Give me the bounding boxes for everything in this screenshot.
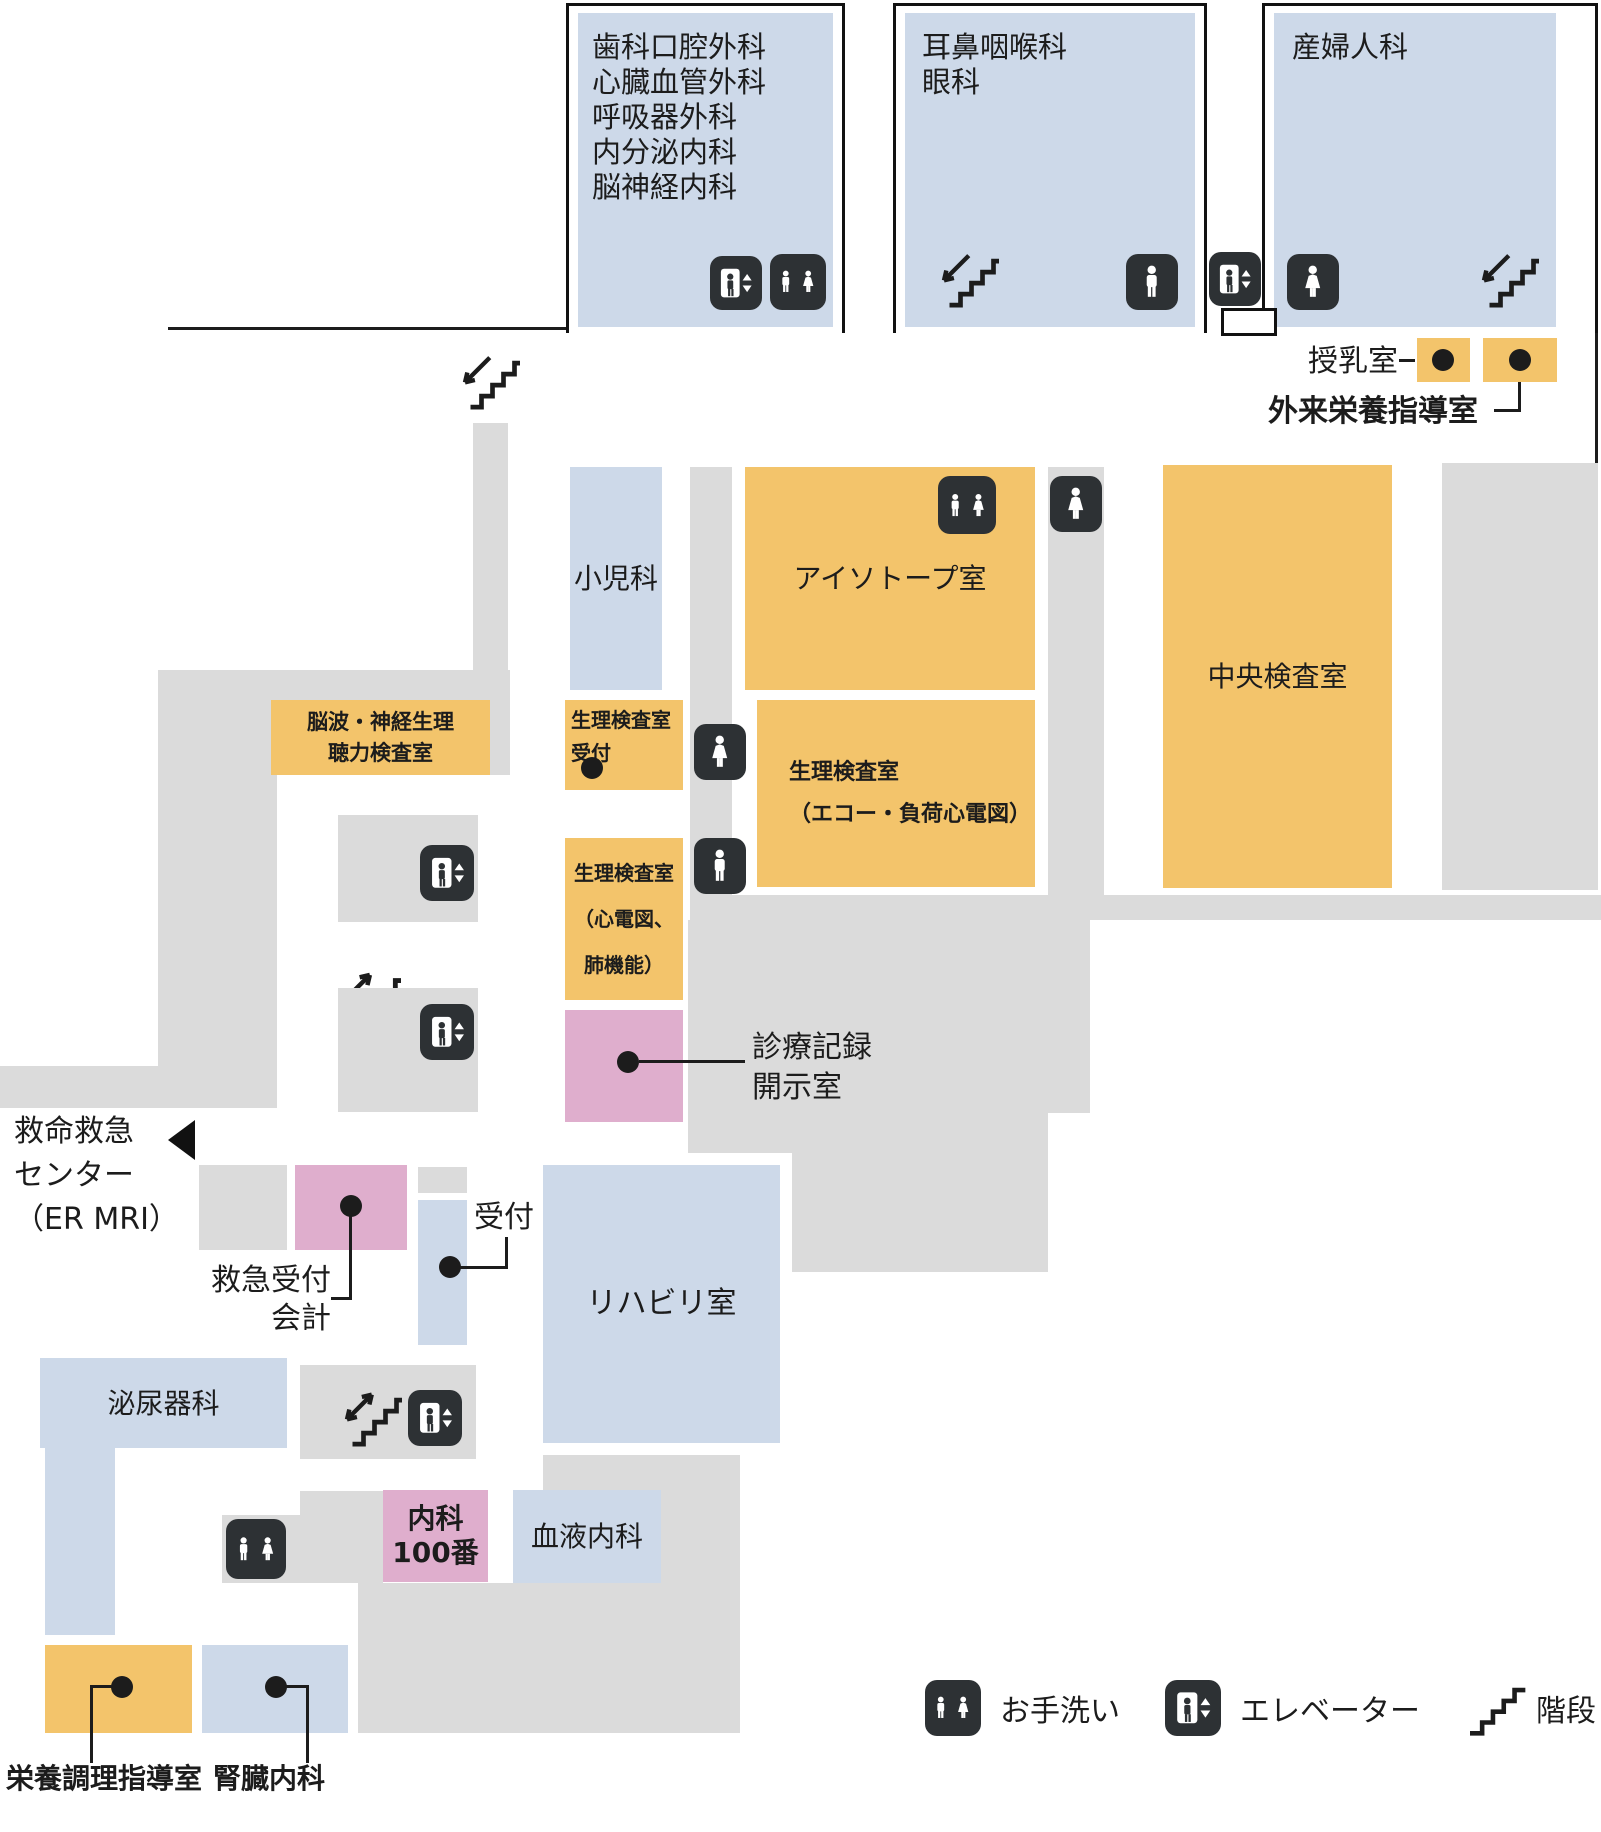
location-dot [265,1676,287,1698]
leader-line [349,1216,352,1300]
corridor [1442,463,1598,890]
corridor [1048,467,1104,920]
room-label: 生理検査室 [574,863,674,883]
room-urology-wing [45,1448,115,1635]
stairs-icon [1473,248,1539,310]
room-central-lab: 中央検査室 [1163,465,1392,888]
room-physio-echo: 生理検査室 （エコー・負荷心電図） [757,700,1035,887]
stairs-icon [933,248,999,310]
room-label: （心電図、 [574,909,674,929]
elevator-icon [420,845,474,901]
room-label: 耳鼻咽喉科 [922,30,1067,65]
elevator-icon [1165,1680,1221,1736]
room-naika100: 内科 100番 [383,1490,488,1582]
outline-top-left-wall [168,327,570,330]
room-label: アイソトープ室 [794,561,987,596]
toilet-men-icon [694,838,746,894]
toilet-women-icon [1287,254,1339,310]
label-line: 救命救急 [14,1114,134,1149]
stairs-icon [336,1388,402,1448]
room-urology: 泌尿器科 [40,1358,287,1448]
corridor [199,1165,287,1250]
toilet-icon [938,476,996,534]
leader-line [331,1297,351,1300]
room-label: 脳波・神経生理 [307,707,454,738]
toilet-women-icon [1050,476,1102,532]
room-label: 呼吸器外科 [592,100,737,135]
corridor [690,895,1601,920]
leader-line [1399,359,1415,362]
room-physio-reception: 生理検査室 受付 [565,700,683,790]
corridor [792,1153,1048,1272]
room-label: 産婦人科 [1292,30,1408,65]
room-label: 血液内科 [531,1519,643,1554]
room-label: 心臓血管外科 [592,65,766,100]
corridor [688,920,1090,1113]
toilet-icon [925,1680,981,1736]
corridor [358,1583,740,1733]
room-label: 100番 [392,1536,478,1570]
nephrology-label: 腎臓内科 [213,1762,325,1796]
room-hematology: 血液内科 [513,1490,661,1583]
corridor [158,775,277,1108]
label-line: 会計 [271,1301,331,1336]
elevator-shaft-box [1221,308,1277,336]
room-label: 歯科口腔外科 [592,30,766,65]
outpatient-nutrition-label: 外来栄養指導室 [1268,394,1478,430]
records-disclosure-label: 診療記録開示室 [752,1028,872,1108]
leader-line [1494,409,1520,412]
room-rehab: リハビリ室 [543,1165,780,1443]
room-label: 泌尿器科 [107,1386,219,1421]
legend-stairs-label: 階段 [1536,1694,1596,1730]
elevator-icon [420,1004,474,1060]
toilet-icon [770,254,826,310]
leader-line [452,1266,508,1269]
toilet-icon [226,1519,286,1579]
label-line: センター [14,1158,134,1193]
room-label: 小児科 [574,561,658,596]
leader-line [639,1060,745,1063]
label-line: 診療記録 [752,1030,872,1065]
leader-line [306,1685,309,1763]
er-reception-label: 救急受付会計 [197,1262,331,1338]
room-label: 中央検査室 [1207,659,1347,694]
leader-line [1518,382,1521,412]
location-dot [617,1051,639,1073]
room-physio-ecg: 生理検査室 （心電図、 肺機能） [565,838,683,1000]
er-direction-arrow-icon [168,1120,195,1160]
room-label: リハビリ室 [587,1285,737,1323]
label-line: 開示室 [752,1070,842,1105]
room-label: 内科 [407,1502,463,1536]
leader-line [92,1685,116,1688]
label-line: （ER MRI） [14,1202,179,1237]
room-label: （エコー・負荷心電図） [789,794,1031,836]
label-line: 救急受付 [211,1263,331,1298]
leader-line [505,1237,508,1269]
elevator-icon [1209,252,1261,306]
room-label: 生理検査室 [571,710,671,730]
room-label: 聴力検査室 [328,738,433,769]
legend-elevator-label: エレベーター [1240,1694,1420,1730]
legend-toilet-label: お手洗い [1000,1694,1120,1730]
room-label: 眼科 [922,65,980,100]
corridor [0,1066,160,1108]
location-dot [340,1195,362,1217]
corridor [473,423,508,673]
elevator-icon [710,256,762,310]
room-label: 脳神経内科 [592,170,737,205]
elevator-icon [408,1390,462,1446]
room-label: 生理検査室 [789,752,899,794]
nursing-room-label: 授乳室 [1280,344,1398,380]
room-label: 肺機能） [584,955,664,975]
nutrition-cooking-label: 栄養調理指導室 [6,1762,202,1796]
room-label: 内分泌内科 [592,135,737,170]
hospital-floor-map: 歯科口腔外科 心臓血管外科 呼吸器外科 内分泌内科 脳神経内科 耳鼻咽喉科 眼科… [0,0,1601,1832]
corridor [418,1167,467,1193]
location-dot [1432,349,1454,371]
toilet-women-icon [694,724,746,780]
room-pediatrics: 小児科 [570,467,662,690]
corridor [688,1113,1048,1153]
toilet-men-icon [1126,254,1178,310]
stairs-icon [454,350,520,412]
location-dot [581,757,603,779]
er-center-label: 救命救急センター（ER MRI） [14,1110,179,1242]
stairs-icon [1466,1682,1528,1736]
corridor [300,1491,383,1583]
room-eeg: 脳波・神経生理 聴力検査室 [271,700,490,775]
reception-label: 受付 [474,1200,534,1236]
location-dot [1509,349,1531,371]
leader-line [90,1685,93,1763]
